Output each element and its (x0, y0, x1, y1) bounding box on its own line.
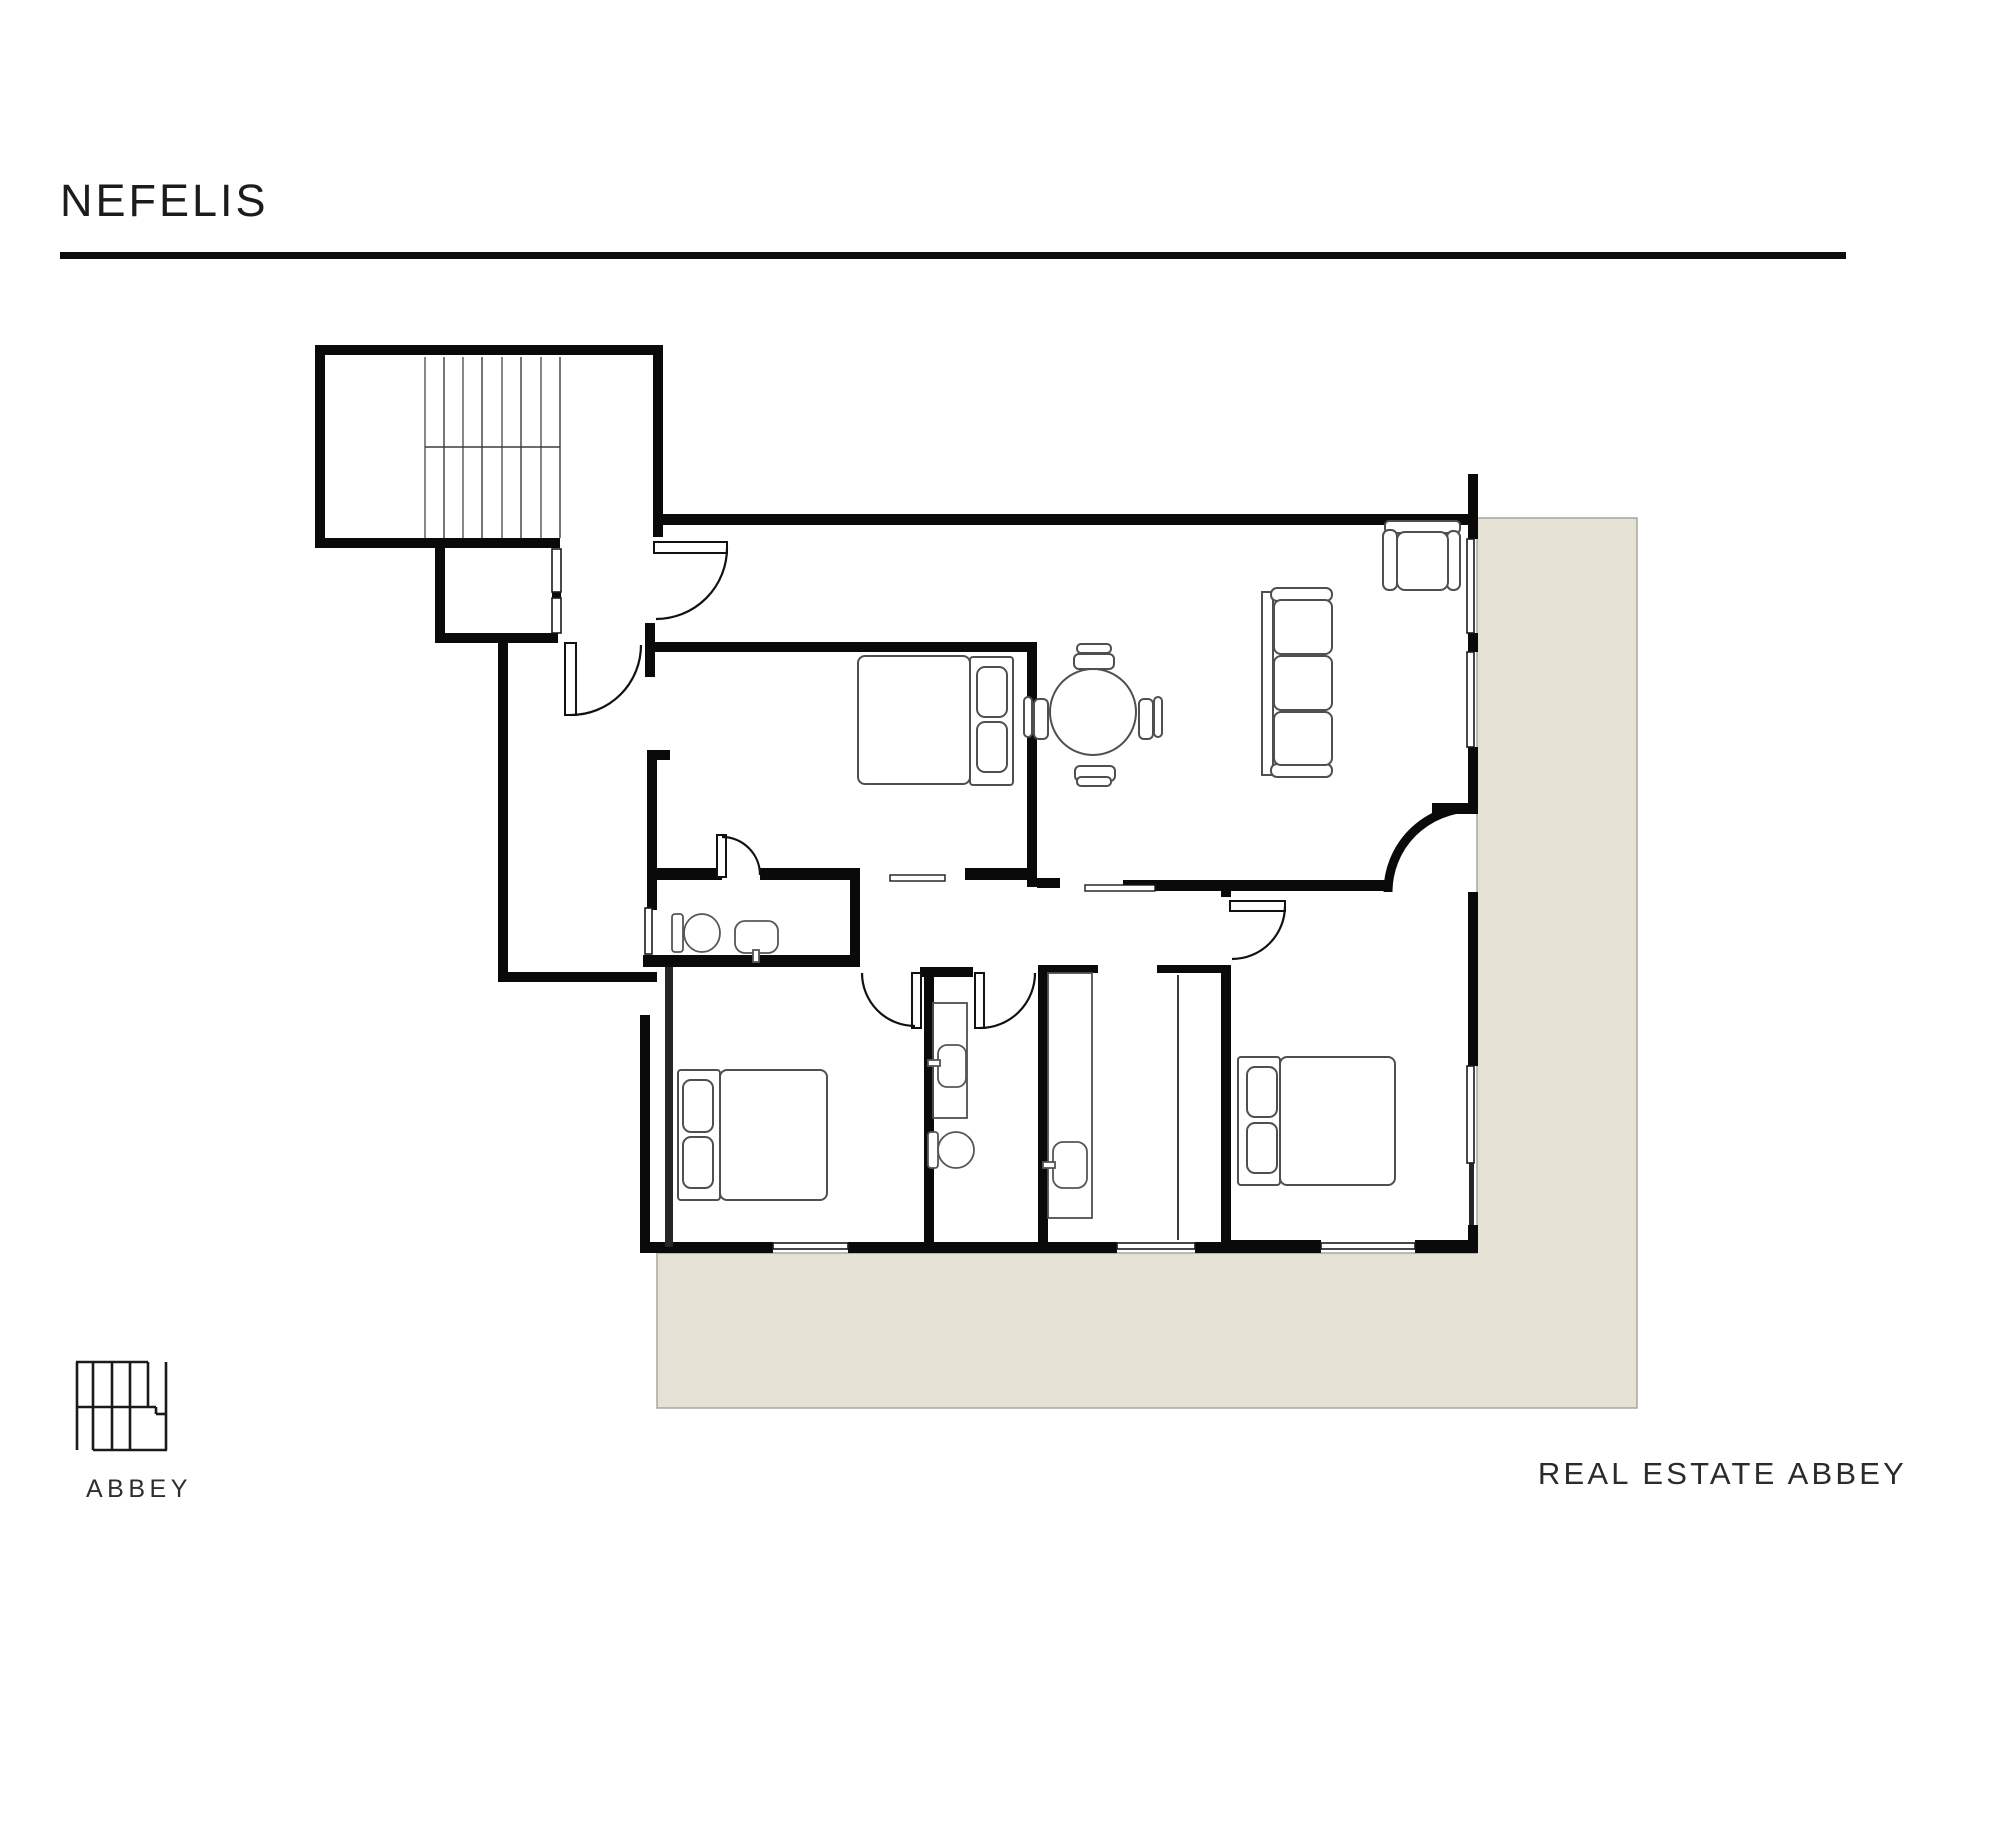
landing-walls (435, 545, 561, 643)
curved-wall (1388, 808, 1472, 892)
threshold-bedroom1 (890, 875, 945, 881)
armchair-cushion (1397, 532, 1448, 590)
wc2-door (975, 973, 1035, 1028)
staircase (425, 357, 560, 538)
brand-logo-block: ABBEY (70, 1355, 250, 1504)
window-bedroom2-bottom (773, 1243, 848, 1249)
toilet-bowl-icon (938, 1132, 974, 1168)
landing-glass-panel (552, 598, 561, 633)
bed-double-icon-bedroom2 (678, 1070, 827, 1200)
bedroom1-wc-door (717, 835, 760, 877)
bedroom3-door (1230, 901, 1285, 959)
abbey-grid-logo-icon (70, 1355, 190, 1460)
pillow (683, 1137, 713, 1188)
window-bedroom3-side (1467, 1066, 1474, 1163)
window-bathroom-bottom (1117, 1243, 1195, 1249)
sink-tap (928, 1060, 940, 1066)
entry-door (654, 542, 727, 619)
sofa-cushion (1274, 656, 1332, 710)
chair-seat (1139, 699, 1153, 739)
chair-back (1154, 697, 1162, 737)
hall-door (565, 643, 641, 715)
window-living-1 (1467, 539, 1474, 633)
bedroom2-door (862, 973, 921, 1028)
sofa-cushion (1274, 600, 1332, 654)
logo-label: ABBEY (86, 1475, 250, 1504)
agency-name: REAL ESTATE ABBEY (1538, 1456, 1907, 1492)
window-living-2 (1467, 652, 1474, 747)
right-wall-stub (1468, 474, 1478, 514)
wc2-fixtures (928, 1003, 974, 1168)
chair-seat (1034, 699, 1048, 739)
floor-plan-page: NEFELIS (0, 0, 2000, 1828)
armchair-icon (1383, 521, 1460, 590)
sofa-back (1262, 592, 1273, 775)
wc1-fixtures (672, 914, 778, 962)
armchair-arm (1383, 530, 1397, 590)
toilet-tank-icon (672, 914, 683, 952)
dining-table-icon (1024, 644, 1162, 786)
pillow (1247, 1067, 1277, 1117)
window-bedroom3-bottom (1321, 1243, 1415, 1249)
toilet-bowl-icon (684, 914, 720, 952)
top-wall (660, 514, 1478, 525)
bed-double-icon-bedroom3 (1238, 1057, 1395, 1185)
floor-plan-drawing (0, 0, 2000, 1828)
sofa-icon (1262, 588, 1332, 777)
chair-seat (1074, 654, 1114, 669)
toilet-tank-icon (928, 1132, 938, 1168)
chair-back (1077, 644, 1111, 653)
pillow (977, 667, 1007, 717)
chair-back (1077, 777, 1111, 786)
chair-back (1024, 697, 1032, 737)
sink-tap (753, 950, 759, 962)
landing-glass-panel (552, 549, 561, 592)
sink-tap (1043, 1162, 1055, 1168)
bed-double-icon-bedroom1 (858, 656, 1013, 785)
sink-icon (735, 921, 778, 953)
pillow (683, 1080, 713, 1132)
threshold-living (1085, 885, 1155, 891)
pillow (977, 722, 1007, 772)
pillow (1247, 1123, 1277, 1173)
bathroom3-fixtures (1043, 973, 1178, 1240)
sofa-cushion (1274, 712, 1332, 765)
sink-icon (938, 1045, 966, 1087)
sink-icon (1053, 1142, 1087, 1188)
wc1-sliding-door (645, 908, 652, 954)
